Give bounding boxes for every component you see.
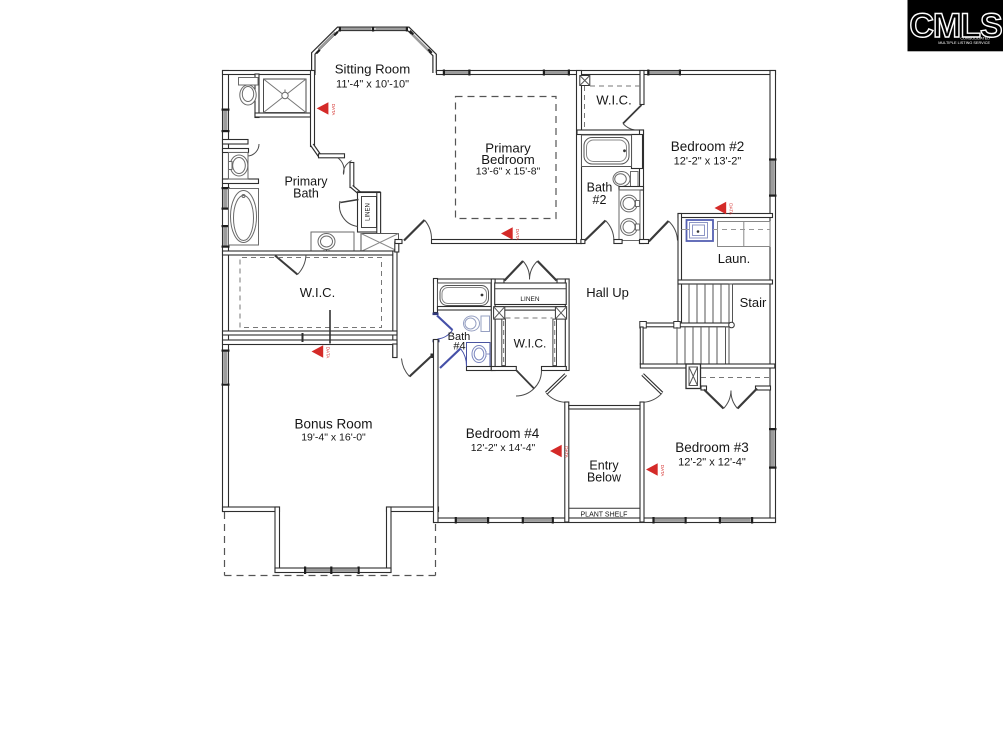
svg-text:DATA: DATA: [331, 104, 336, 117]
svg-text:Stair: Stair: [740, 295, 767, 310]
svg-text:Bath: Bath: [293, 187, 319, 201]
svg-text:DATA: DATA: [515, 229, 520, 242]
svg-text:DATA: DATA: [564, 446, 569, 459]
svg-text:Laun.: Laun.: [718, 251, 751, 266]
svg-text:13'-6" x 15'-8": 13'-6" x 15'-8": [476, 166, 541, 178]
svg-text:LINEN: LINEN: [520, 296, 539, 303]
svg-text:Below: Below: [587, 471, 622, 485]
svg-text:DATA: DATA: [326, 347, 331, 360]
svg-text:Bedroom #4: Bedroom #4: [466, 426, 540, 441]
svg-text:W.I.C.: W.I.C.: [514, 337, 547, 351]
svg-text:DATA: DATA: [660, 465, 665, 478]
svg-text:Bonus Room: Bonus Room: [294, 417, 372, 432]
svg-text:MULTIPLE LISTING SERVICE: MULTIPLE LISTING SERVICE: [938, 41, 990, 45]
svg-text:Bedroom #3: Bedroom #3: [675, 440, 749, 455]
svg-text:Hall Up: Hall Up: [586, 285, 629, 300]
svg-text:11'-4" x 10'-10": 11'-4" x 10'-10": [336, 79, 409, 91]
svg-text:19'-4" x 16'-0": 19'-4" x 16'-0": [301, 432, 366, 444]
svg-text:DATA: DATA: [729, 203, 734, 216]
svg-text:W.I.C.: W.I.C.: [596, 93, 631, 108]
svg-text:Sitting Room: Sitting Room: [335, 62, 411, 77]
svg-text:12'-2" x 13'-2": 12'-2" x 13'-2": [674, 156, 742, 168]
svg-text:12'-2" x 14'-4": 12'-2" x 14'-4": [471, 442, 536, 454]
svg-text:#2: #2: [593, 193, 607, 207]
svg-text:PLANT SHELF: PLANT SHELF: [581, 512, 628, 519]
svg-text:Bedroom #2: Bedroom #2: [671, 139, 745, 154]
svg-text:W.I.C.: W.I.C.: [300, 285, 335, 300]
svg-text:LINEN: LINEN: [365, 203, 371, 221]
svg-text:12'-2" x 12'-4": 12'-2" x 12'-4": [678, 457, 746, 469]
svg-text:#4: #4: [453, 341, 465, 353]
